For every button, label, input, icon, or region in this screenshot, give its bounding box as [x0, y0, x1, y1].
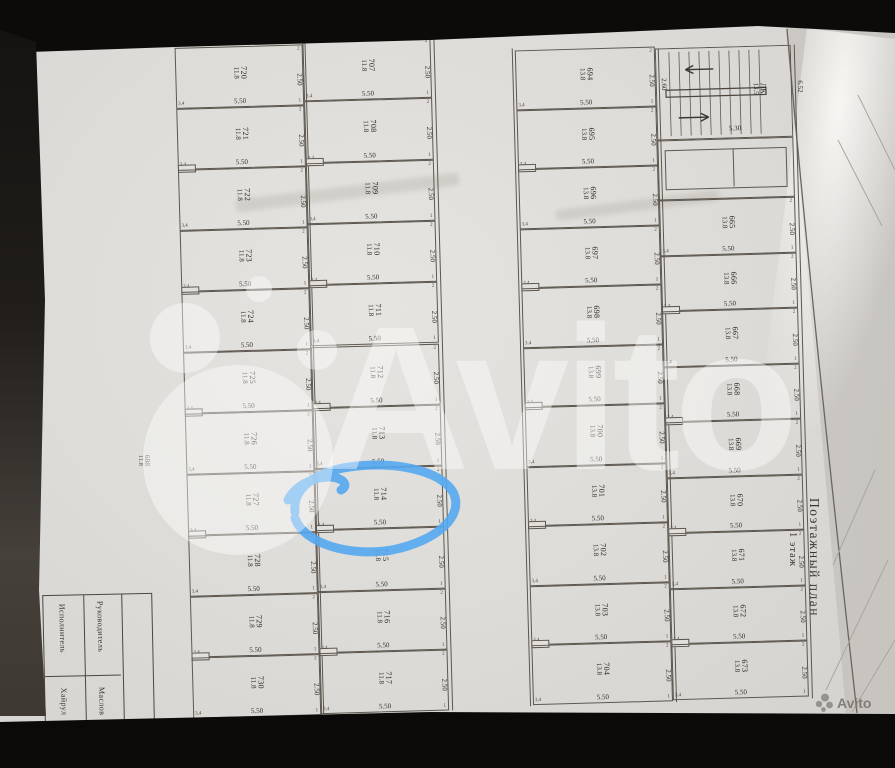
- corner-tick: 2: [306, 351, 309, 356]
- title-block-role-1: Исполнитель: [57, 604, 67, 653]
- corner-tick: 2: [302, 229, 305, 234]
- parking-stall: 72011.85.502.503,421: [175, 44, 305, 109]
- stall-label: 72911.8: [191, 598, 318, 645]
- corridor-cell: [657, 137, 795, 201]
- corner-tick: 3,4: [316, 462, 322, 467]
- corner-tick: 2: [311, 534, 314, 539]
- corner-tick: 1: [791, 245, 794, 250]
- stall-label: 66913.8: [666, 424, 801, 465]
- stall-depth-dim: 2.50: [304, 378, 312, 390]
- stall-depth-dim: 2.50: [792, 389, 800, 401]
- corner-tick: 2: [437, 468, 440, 473]
- corner-tick: 1: [314, 647, 317, 652]
- stall-label: 70911.8: [307, 164, 434, 211]
- corner-tick: 1: [305, 342, 308, 347]
- corner-tick: 2: [656, 287, 659, 292]
- stall-depth-dim: 2.50: [651, 193, 659, 205]
- parking-stall: 71411.85.502.503,421: [314, 466, 444, 531]
- stair-width-dim: 5.30: [705, 123, 765, 133]
- parking-stall: 71611.85.502.503,421: [318, 588, 448, 653]
- floor-caption-vertical: 1 этаж: [787, 532, 798, 567]
- stall-depth-dim: 2.50: [789, 278, 797, 290]
- parking-stall: 72111.85.502.503,421: [176, 105, 306, 170]
- corner-tick: 1: [437, 459, 440, 464]
- corner-tick: 1: [428, 152, 431, 157]
- edge-stall-label: 688 11.8: [138, 452, 149, 470]
- stall-depth-dim: 2.50: [297, 134, 305, 146]
- avito-dots-icon: [814, 693, 834, 713]
- parking-stall: 66913.85.502.503,421: [665, 419, 802, 478]
- corner-tick: 3,4: [672, 582, 678, 587]
- corner-tick: 2: [664, 584, 667, 589]
- avito-corner-text: Avito: [837, 695, 871, 711]
- stall-label: 69713.8: [521, 230, 660, 275]
- parking-stall: 70711.85.502.503,421: [302, 37, 432, 102]
- stall-depth-dim: 2.50: [426, 188, 434, 200]
- corner-tick: 1: [426, 91, 429, 96]
- corner-tick: 1: [799, 523, 802, 528]
- corner-tick: 1: [304, 281, 307, 286]
- parking-stall: 66613.85.502.503,421: [661, 252, 798, 311]
- stall-width-dim: 5.50: [194, 705, 320, 717]
- corner-tick: 1: [656, 278, 659, 283]
- stall-label: 67313.8: [673, 646, 808, 687]
- corner-tick: 2: [797, 476, 800, 481]
- corner-tick: 3,4: [518, 103, 524, 108]
- stall-label: 72311.8: [181, 232, 308, 279]
- corner-tick: 2: [432, 284, 435, 289]
- corner-tick: 1: [657, 337, 660, 342]
- corner-tick: 2: [649, 49, 652, 54]
- corner-tick: 1: [795, 412, 798, 417]
- parking-plan-drawing: ЛК 13.5 2.60 5.30 6.52 72011.85.502.503,…: [172, 10, 841, 728]
- corner-tick: 2: [304, 290, 307, 295]
- stall-label: 69513.8: [518, 111, 657, 156]
- stall-label: 70313.8: [531, 587, 670, 632]
- corner-tick: 2: [442, 652, 445, 657]
- stall-label: 71411.8: [316, 471, 443, 518]
- corner-tick: 2: [312, 595, 315, 600]
- corner-tick: 1: [307, 403, 310, 408]
- stall-depth-dim: 2.50: [438, 617, 446, 629]
- parking-stall: 72911.85.502.503,421: [190, 593, 320, 658]
- title-block-name-2: Маслов: [97, 687, 107, 716]
- corner-tick: 3,4: [669, 471, 675, 476]
- corner-tick: 2: [659, 405, 662, 410]
- stall-depth-dim: 2.50: [305, 439, 313, 451]
- corner-tick: 2: [658, 346, 661, 351]
- corner-tick: 2: [654, 227, 657, 232]
- stairwell-label: ЛК 13.5: [733, 63, 784, 114]
- parking-stall: 70911.85.502.503,421: [306, 159, 436, 224]
- stall-label: 72411.8: [183, 293, 310, 340]
- corner-tick: 1: [316, 708, 319, 713]
- corner-tick: 1: [435, 398, 438, 403]
- stall-label: 72611.8: [186, 415, 313, 462]
- parking-stall: 71211.85.502.503,421: [311, 343, 441, 408]
- corner-tick: 1: [667, 694, 670, 699]
- corner-tick: 1: [312, 586, 315, 591]
- parking-stall: 72711.85.502.503,421: [186, 471, 316, 536]
- corner-tick: 1: [431, 275, 434, 280]
- corner-tick: 1: [299, 98, 302, 103]
- corner-tick: 2: [433, 345, 436, 350]
- corner-tick: 1: [443, 704, 446, 709]
- stall-depth-dim: 2.50: [654, 312, 662, 324]
- corner-tick: 1: [659, 396, 662, 401]
- corner-tick: 2: [430, 223, 433, 228]
- parking-stall: 69613.85.502.503,421: [518, 165, 660, 228]
- floor-plan-photo: ЛК 13.5 2.60 5.30 6.52 72011.85.502.503,…: [0, 0, 895, 768]
- corner-tick: 2: [666, 643, 669, 648]
- stall-label: 72011.8: [176, 49, 303, 96]
- parking-stall: 72211.85.502.503,421: [178, 166, 308, 231]
- stall-depth-dim: 2.50: [428, 249, 436, 261]
- stair-depth-dim: 2.60: [660, 78, 668, 90]
- corner-tick: 2: [314, 656, 317, 661]
- parking-stall: 70113.85.502.503,421: [526, 463, 668, 526]
- corner-tick: 3,4: [313, 340, 319, 345]
- plan-title-vertical: Поэтажный план: [806, 498, 822, 617]
- stall-depth-dim: 2.50: [661, 550, 669, 562]
- corner-tick: 1: [803, 689, 806, 694]
- stall-label: 72811.8: [189, 537, 316, 584]
- parking-stall: 72811.85.502.503,421: [188, 532, 318, 597]
- stall-label: 71311.8: [314, 409, 441, 456]
- corner-tick: 3,4: [675, 693, 681, 698]
- parking-stall: 67213.85.502.503,421: [670, 585, 807, 644]
- stall-depth-dim: 2.50: [430, 310, 438, 322]
- corner-tick: 2: [799, 532, 802, 537]
- stair-edge-dim: 6.52: [796, 80, 804, 92]
- stall-label: 66813.8: [665, 368, 800, 409]
- stall-label: 69413.8: [516, 52, 655, 97]
- parking-stall: 70213.85.502.503,421: [528, 522, 670, 585]
- stall-depth-dim: 2.50: [652, 253, 660, 265]
- corner-tick: 2: [427, 100, 430, 105]
- avito-corner-logo: Avito: [814, 693, 871, 713]
- stall-label: 66613.8: [662, 257, 797, 298]
- corner-tick: 3,4: [188, 468, 194, 473]
- corner-tick: 2: [653, 168, 656, 173]
- stall-depth-dim: 2.50: [435, 494, 443, 506]
- stall-label: 72111.8: [177, 110, 304, 157]
- parking-stall: 70313.85.502.503,421: [530, 582, 672, 645]
- corner-tick: 1: [794, 356, 797, 361]
- stall-depth-dim: 2.50: [312, 682, 320, 694]
- parking-stall: 70811.85.502.503,421: [304, 98, 434, 163]
- stall-label: 70113.8: [528, 468, 667, 513]
- parking-stall: 72411.85.502.503,421: [181, 288, 311, 353]
- parking-stall: 67313.85.502.503,421: [671, 640, 808, 699]
- stall-label: 72711.8: [188, 476, 315, 523]
- corner-tick: 3,4: [192, 589, 198, 594]
- parking-stall: 72511.85.502.503,421: [183, 349, 313, 414]
- stall-label: 71111.8: [310, 287, 437, 334]
- corner-tick: 3,4: [195, 711, 201, 716]
- stall-depth-dim: 2.50: [440, 678, 448, 690]
- corner-tick: 1: [802, 634, 805, 639]
- stall-depth-dim: 2.50: [311, 622, 319, 634]
- corner-tick: 1: [430, 214, 433, 219]
- corner-tick: 2: [307, 412, 310, 417]
- corner-tick: 3,4: [178, 102, 184, 107]
- parking-stall: 70413.85.502.503,421: [531, 641, 673, 704]
- parking-stall: 71711.85.502.503,421: [320, 650, 450, 715]
- stall-depth-dim: 2.50: [649, 134, 657, 146]
- stall-depth-dim: 2.50: [795, 500, 803, 512]
- corner-tick: 3,4: [522, 222, 528, 227]
- parking-stall: 67013.85.502.503,421: [667, 474, 804, 533]
- parking-stall: 70013.85.502.503,421: [525, 403, 667, 466]
- stall-label: 70711.8: [304, 42, 431, 89]
- stall-depth-dim: 2.50: [300, 256, 308, 268]
- stall-depth-dim: 2.50: [788, 222, 796, 234]
- corner-tick: 3,4: [309, 217, 315, 222]
- parking-stall: 66813.85.502.503,421: [664, 363, 801, 422]
- stall-label: 66513.8: [660, 202, 795, 243]
- parking-stall: 73011.85.502.503,421: [192, 654, 322, 719]
- stall-depth-dim: 2.50: [433, 433, 441, 445]
- corner-tick: 2: [300, 168, 303, 173]
- parking-stall: 71311.85.502.503,421: [313, 404, 443, 469]
- stall-label: 70213.8: [529, 527, 668, 572]
- stall-label: 73011.8: [193, 659, 320, 706]
- stall-depth-dim: 2.50: [794, 444, 802, 456]
- stall-depth-dim: 2.50: [662, 609, 670, 621]
- corner-tick: 3,4: [320, 585, 326, 590]
- corner-tick: 1: [302, 220, 305, 225]
- corner-tick: 1: [440, 581, 443, 586]
- stall-depth-dim: 2.50: [307, 500, 315, 512]
- corner-tick: 1: [309, 464, 312, 469]
- title-block-name-1: Хайрул: [59, 688, 69, 716]
- parking-stall: 72611.85.502.503,421: [185, 410, 315, 475]
- stall-label: 71511.8: [317, 532, 444, 579]
- parking-stall: 69513.85.502.503,421: [516, 106, 658, 169]
- corner-tick: 2: [309, 473, 312, 478]
- corner-tick: 2: [661, 465, 664, 470]
- stall-depth-dim: 2.50: [299, 195, 307, 207]
- corner-tick: 3,4: [306, 94, 312, 99]
- corner-tick: 3,4: [525, 341, 531, 346]
- title-block-role-2: Руководитель: [95, 601, 105, 652]
- corner-tick: 2: [796, 421, 799, 426]
- stall-label: 69913.8: [524, 349, 663, 394]
- stall-depth-dim: 2.50: [295, 73, 303, 85]
- stall-depth-dim: 2.50: [657, 431, 665, 443]
- corner-tick: 1: [797, 467, 800, 472]
- corner-tick: 2: [790, 199, 793, 204]
- corner-tick: 3,4: [323, 707, 329, 712]
- stall-depth-dim: 2.50: [432, 372, 440, 384]
- corner-tick: 2: [297, 46, 300, 51]
- parking-stall: 71111.85.502.503,421: [309, 282, 439, 347]
- corner-tick: 2: [794, 365, 797, 370]
- corner-tick: 1: [661, 456, 664, 461]
- stall-depth-dim: 2.50: [309, 561, 317, 573]
- parking-stall: 72311.85.502.503,421: [180, 227, 310, 292]
- corner-tick: 1: [310, 525, 313, 530]
- parking-stall: 69913.85.502.503,421: [523, 344, 665, 407]
- parking-stall: 71011.85.502.503,421: [308, 221, 438, 286]
- stall-label: 70413.8: [533, 646, 672, 691]
- parking-stall: 66513.85.502.503,421: [659, 197, 796, 256]
- stall-depth-dim: 2.50: [800, 666, 808, 678]
- corner-tick: 3,4: [662, 249, 668, 254]
- stall-depth-dim: 2.50: [664, 669, 672, 681]
- stall-label: 70013.8: [526, 408, 665, 453]
- parking-stall: 67113.85.502.503,421: [668, 530, 805, 589]
- corner-tick: 3,4: [665, 360, 671, 365]
- corner-tick: 2: [440, 590, 443, 595]
- corner-tick: 1: [654, 218, 657, 223]
- corner-tick: 3,4: [535, 697, 541, 702]
- stall-label: 71711.8: [321, 655, 448, 702]
- stall-label: 69813.8: [523, 289, 662, 334]
- title-block-line: [45, 675, 121, 678]
- corner-tick: 2: [802, 643, 805, 648]
- corner-tick: 1: [651, 99, 654, 104]
- corner-tick: 1: [652, 159, 655, 164]
- parking-stall: 69413.85.502.503,421: [515, 47, 657, 110]
- parking-stall: 71511.85.502.503,421: [316, 527, 446, 592]
- stall-label: 67013.8: [668, 479, 803, 520]
- corner-tick: 2: [428, 161, 431, 166]
- stall-depth-dim: 2.50: [302, 317, 310, 329]
- corner-tick: 2: [791, 254, 794, 259]
- stall-label: 72211.8: [179, 171, 306, 218]
- corner-tick: 1: [792, 301, 795, 306]
- corner-tick: 1: [662, 515, 665, 520]
- parking-stall: 69713.85.502.503,421: [520, 225, 662, 288]
- corner-tick: 1: [300, 159, 303, 164]
- stall-depth-dim: 2.50: [791, 333, 799, 345]
- corner-tick: 3,4: [185, 346, 191, 351]
- corner-tick: 3,4: [532, 579, 538, 584]
- stall-label: 71011.8: [309, 226, 436, 273]
- stall-label: 71611.8: [319, 593, 446, 640]
- stall-depth-dim: 2.50: [797, 555, 805, 567]
- corner-tick: 2: [439, 529, 442, 534]
- corner-tick: 1: [664, 575, 667, 580]
- corner-tick: 1: [433, 336, 436, 341]
- stall-label: 67213.8: [671, 590, 806, 631]
- stall-label: 67113.8: [669, 535, 804, 576]
- stall-label: 71211.8: [312, 348, 439, 395]
- parking-stall: 69813.85.502.503,421: [521, 284, 663, 347]
- corner-tick: 1: [800, 578, 803, 583]
- corner-tick: 2: [651, 108, 654, 113]
- corner-tick: 3,4: [181, 224, 187, 229]
- corner-tick: 2: [299, 107, 302, 112]
- stall-width-dim: 5.50: [322, 701, 448, 713]
- stall-label: 72511.8: [184, 354, 311, 401]
- stall-label: 66713.8: [663, 313, 798, 354]
- corner-tick: 2: [800, 587, 803, 592]
- stall-depth-dim: 2.50: [423, 65, 431, 77]
- stall-depth-dim: 2.50: [437, 555, 445, 567]
- parking-stall: 66713.85.502.503,421: [662, 308, 799, 367]
- stall-depth-dim: 2.50: [656, 372, 664, 384]
- stall-depth-dim: 2.50: [647, 74, 655, 86]
- stall-label: 69613.8: [519, 171, 658, 216]
- corner-tick: 1: [666, 634, 669, 639]
- stall-width-dim: 5.50: [674, 686, 808, 698]
- stall-depth-dim: 2.50: [659, 490, 667, 502]
- corner-tick: 2: [663, 524, 666, 529]
- corner-tick: 1: [442, 643, 445, 648]
- corner-tick: 3,4: [528, 460, 534, 465]
- corner-tick: 1: [438, 520, 441, 525]
- stall-depth-dim: 2.50: [425, 127, 433, 139]
- stall-width-dim: 5.50: [534, 691, 672, 703]
- corner-tick: 2: [793, 310, 796, 315]
- stall-label: 70811.8: [305, 103, 432, 150]
- corner-tick: 2: [435, 407, 438, 412]
- corridor-inner-rect: [665, 147, 788, 190]
